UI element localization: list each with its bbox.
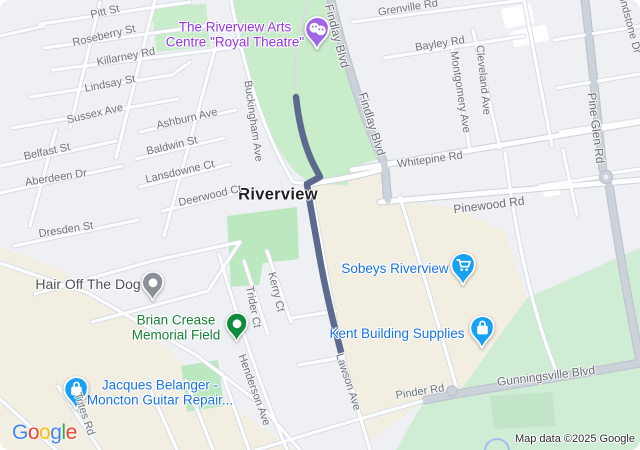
generic-place-pin-icon-hair[interactable] bbox=[141, 271, 165, 303]
shopping-bag-pin-icon-kent[interactable] bbox=[469, 315, 496, 351]
poi-label-kent[interactable]: Kent Building Supplies bbox=[329, 327, 464, 342]
shopping-cart-pin-icon[interactable] bbox=[450, 252, 477, 288]
generic-place-pin-icon-brian[interactable] bbox=[225, 312, 249, 344]
poi-label-jacques[interactable]: Jacques Belanger -Moncton Guitar Repair.… bbox=[87, 379, 233, 408]
green-patch-dark bbox=[490, 392, 556, 429]
poi-label-arts-centre[interactable]: The Riverview ArtsCentre "Royal Theatre" bbox=[166, 21, 304, 50]
google-logo-letter: e bbox=[66, 421, 77, 444]
roundabout-gunningsville bbox=[447, 386, 457, 396]
google-logo-letter: G bbox=[12, 421, 28, 444]
poi-label-sobeys[interactable]: Sobeys Riverview bbox=[341, 262, 448, 277]
poi-label-hair-off-the-dog[interactable]: Hair Off The Dog bbox=[35, 277, 140, 292]
map-canvas[interactable]: Riverview The Riverview ArtsCentre "Roya… bbox=[0, 0, 640, 450]
map-attribution: Map data ©2025 Google bbox=[515, 433, 635, 445]
city-label-riverview: Riverview bbox=[238, 186, 318, 205]
google-logo-letter: o bbox=[28, 421, 39, 444]
poi-label-brian-crease[interactable]: Brian CreaseMemorial Field bbox=[132, 314, 221, 343]
google-logo-letter: g bbox=[50, 421, 61, 444]
google-logo[interactable]: Google bbox=[12, 421, 77, 445]
google-logo-letter: o bbox=[39, 421, 50, 444]
